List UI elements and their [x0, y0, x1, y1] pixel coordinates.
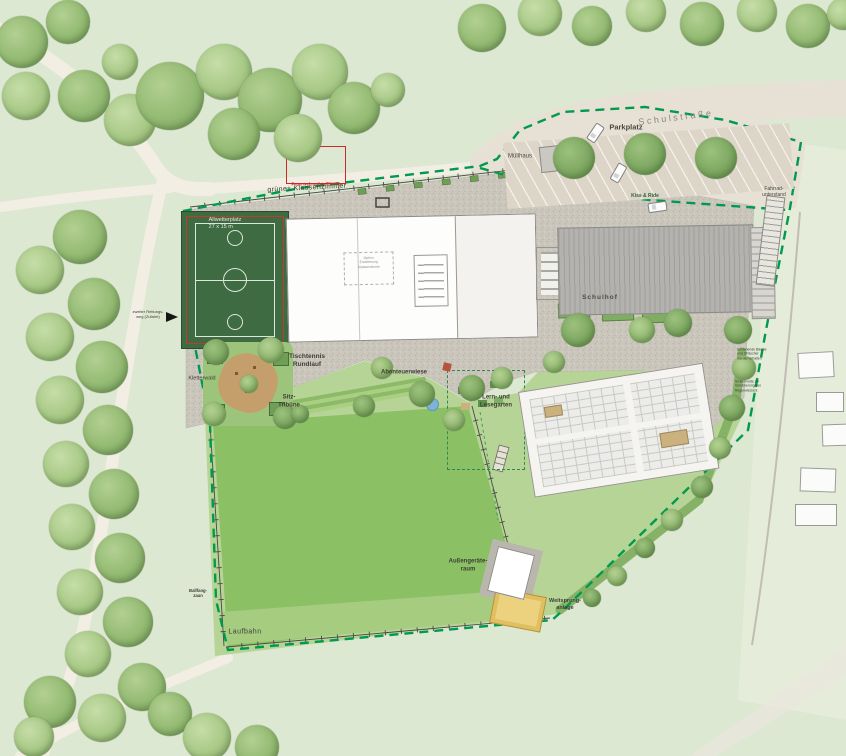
all-weather-court [181, 211, 289, 349]
equipment-shed-label: Außengeräte- raum [449, 559, 488, 574]
climbing-post [245, 390, 248, 393]
table-tennis-label: Tischtennis Rundlauf [289, 353, 325, 369]
ball-fence-label: Ballfang- zaun [189, 588, 207, 599]
rescue-route-label: zweiter Rettungs- weg (Zufahrt) [132, 309, 163, 319]
raised-bed [458, 387, 467, 394]
annotation-trees: bestehende Bäume und Sträucher werden er… [737, 348, 766, 361]
neighbour-house [822, 423, 846, 446]
rescue-route-arrow [166, 312, 178, 322]
extension-note: Option Erweiterung Klassenräume [343, 251, 394, 285]
annotation-swale: Sickermulde zur Versickerung des Regenwa… [735, 380, 761, 393]
waste-house-label: Müllhaus [508, 153, 532, 161]
climbing-post [235, 372, 238, 375]
playhouse [442, 362, 451, 371]
climbing-area [203, 342, 293, 426]
raised-bed [490, 381, 499, 388]
neighbour-house [795, 504, 837, 526]
center-circle [223, 268, 247, 292]
fire-access-area [286, 146, 346, 184]
running-track-label: Laufbahn [228, 629, 261, 638]
neighbour-house [816, 392, 844, 412]
shrub-bed [207, 350, 223, 364]
long-jump-label: Weitsprung- anlage [549, 598, 581, 612]
stair-core [414, 254, 449, 307]
waste-house [539, 145, 564, 173]
learning-garden [447, 370, 525, 470]
bike-shelter-label: Fahrrad- unterstand [762, 186, 786, 199]
shrub-bed [209, 404, 225, 418]
raised-bed [474, 384, 483, 391]
neighbour-house [797, 351, 834, 379]
free-throw-circle [227, 314, 243, 330]
shrub-bed [273, 352, 289, 366]
site-plan: Option Erweiterung Klassenräume Schulstr… [0, 0, 846, 756]
schoolyard-label: Schulhof [582, 294, 618, 302]
climbing-area-label: Kletterwald [188, 376, 215, 383]
pond [426, 398, 439, 411]
raised-bed [461, 403, 470, 410]
parking-label: Parkplatz [609, 122, 642, 131]
adventure-meadow-label: Abenteuerwiese [381, 369, 427, 377]
gym-wing [455, 214, 538, 338]
free-throw-circle [227, 230, 243, 246]
tribune-label: Sitz- Tribüne [278, 395, 300, 410]
neighbour-house [800, 467, 837, 492]
climbing-post [253, 366, 256, 369]
gym-building: Option Erweiterung Klassenräume [286, 213, 539, 342]
kiss-and-ride-label: Kiss & Ride [631, 193, 659, 199]
court-label: Allwetterplatz 27 x 15 m [209, 217, 242, 231]
learning-garden-label: Lern- und Lesegarten [480, 395, 512, 410]
